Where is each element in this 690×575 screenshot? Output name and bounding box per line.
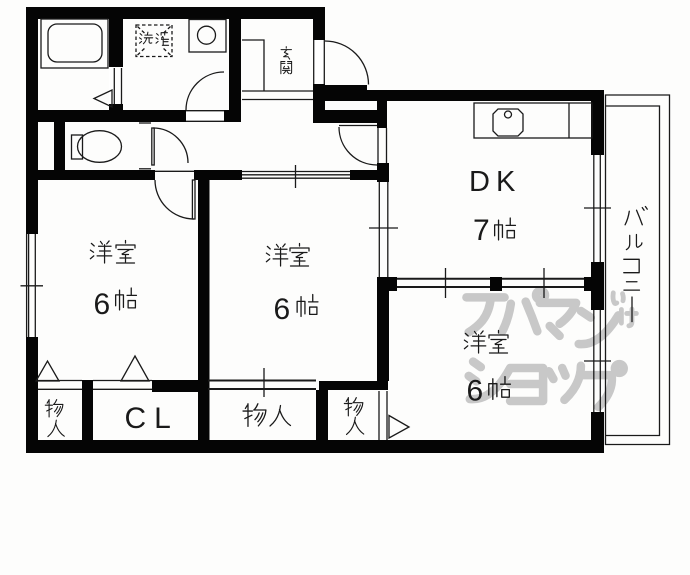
svg-text:7: 7 [473,214,490,247]
svg-text:6: 6 [94,288,111,321]
svg-text:CL: CL [125,402,179,435]
svg-text:DK: DK [469,166,521,198]
svg-text:6: 6 [274,293,291,326]
svg-text:6: 6 [467,375,484,408]
